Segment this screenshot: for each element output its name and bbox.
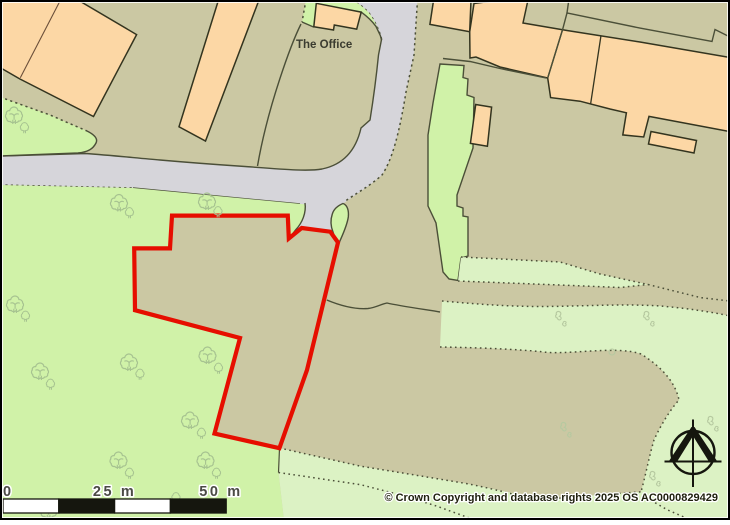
svg-text:25 m: 25 m: [93, 484, 136, 500]
svg-text:The Office: The Office: [296, 39, 352, 51]
svg-text:50 m: 50 m: [199, 484, 242, 500]
svg-text:© Crown Copyright and database: © Crown Copyright and database rights 20…: [384, 492, 718, 504]
svg-text:0: 0: [3, 484, 14, 500]
